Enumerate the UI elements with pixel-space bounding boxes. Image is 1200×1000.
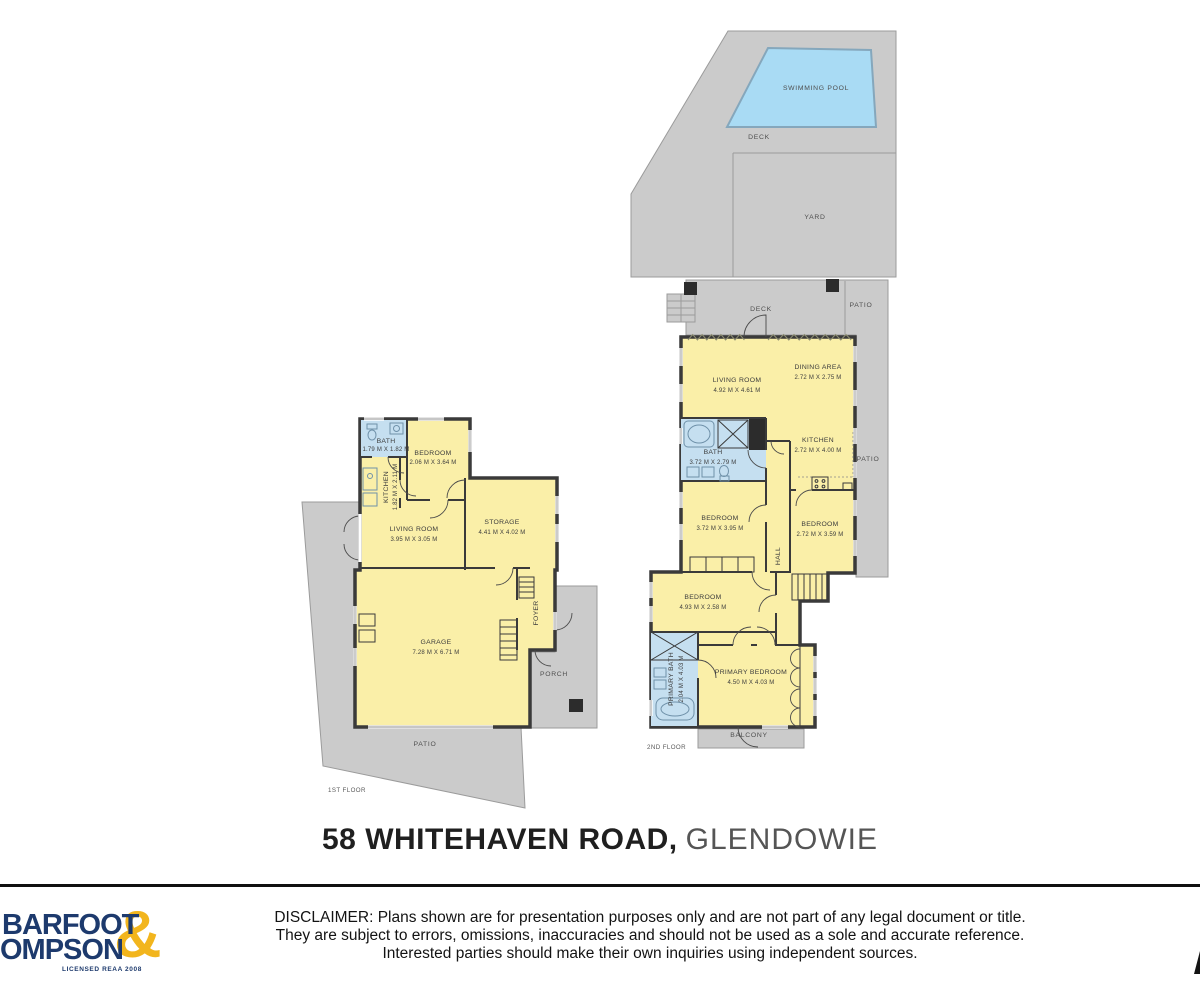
room-dims-kitchen-2f: 2.72 M X 4.00 M [794, 448, 841, 454]
second-floor-label: 2ND FLOOR [647, 744, 686, 751]
room-label-bath-1f: BATH [377, 438, 396, 445]
yard-label: YARD [804, 214, 825, 221]
porch-label: PORCH [540, 671, 568, 678]
room-label-kitchen-2f: KITCHEN [802, 437, 834, 444]
room-dims-garage: 7.28 M X 6.71 M [412, 650, 459, 656]
patio-top-label: PATIO [850, 302, 873, 309]
room-label-foyer: FOYER [533, 601, 540, 626]
swimming-pool-label: SWIMMING POOL [783, 85, 849, 92]
first-floor-plan: BATH 1.79 M X 1.82 M BEDROOM 2.06 M X 3.… [302, 419, 597, 808]
porch-post [569, 699, 583, 712]
room-label-living-room-2f: LIVING ROOM [713, 377, 762, 384]
room-dims-dining-area: 2.72 M X 2.75 M [794, 375, 841, 381]
patio-side-label: PATIO [857, 456, 880, 463]
suburb-text: GLENDOWIE [686, 823, 878, 856]
room-label-primary-bath: PRIMARY BATH [668, 652, 675, 706]
room-dims-bedroom-1: 3.72 M X 3.95 M [696, 526, 743, 532]
room-label-dining-area: DINING AREA [794, 364, 841, 371]
disclaimer-line: Interested parties should make their own… [150, 945, 1150, 963]
deck-post [826, 279, 839, 292]
floor-plan-canvas: SWIMMING POOL DECK YARD DECK PATIO PATIO… [0, 0, 1200, 820]
room-dims-kitchen-1f: 1.82 M X 2.11 M [393, 464, 399, 511]
second-floor-plan: SWIMMING POOL DECK YARD DECK PATIO PATIO… [631, 31, 896, 751]
deck-top-label: DECK [748, 134, 770, 141]
address-text: 58 WHITEHAVEN ROAD, [322, 823, 678, 856]
logo-license: LICENSED REAA 2008 [62, 966, 142, 973]
room-dims-bath-1f: 1.79 M X 1.82 M [362, 447, 409, 453]
floorplan-page: SWIMMING POOL DECK YARD DECK PATIO PATIO… [0, 0, 1200, 1000]
deck-label: DECK [750, 306, 772, 313]
disclaimer-line: DISCLAIMER: Plans shown are for presenta… [150, 909, 1150, 927]
room-dims-primary-bedroom: 4.50 M X 4.03 M [727, 680, 774, 686]
footer: & BARFOOT OMPSON LICENSED REAA 2008 DISC… [0, 884, 1200, 1000]
room-label-bedroom-3: BEDROOM [684, 594, 721, 601]
room-dims-storage: 4.41 M X 4.02 M [478, 530, 525, 536]
deck-post [684, 282, 697, 295]
balcony-label: BALCONY [730, 732, 767, 739]
room-dims-bedroom-2: 2.72 M X 3.59 M [796, 532, 843, 538]
room-label-bedroom-2: BEDROOM [801, 521, 838, 528]
disclaimer-line: They are subject to errors, omissions, i… [150, 927, 1150, 945]
corner-mark [1190, 948, 1200, 976]
logo-line2: OMPSON [0, 936, 123, 965]
room-dims-bedroom-1f: 2.06 M X 3.64 M [409, 460, 456, 466]
room-dims-living-room-2f: 4.92 M X 4.61 M [713, 388, 760, 394]
room-label-bath-2f: BATH [704, 449, 723, 456]
room-label-hall: HALL [775, 547, 782, 565]
room-label-kitchen-1f: KITCHEN [383, 471, 390, 503]
room-dims-living-room-1f: 3.95 M X 3.05 M [390, 537, 437, 543]
disclaimer-text: DISCLAIMER: Plans shown are for presenta… [150, 909, 1150, 963]
patio-label-1f: PATIO [414, 741, 437, 748]
deck-stairs [667, 294, 695, 322]
room-label-bedroom-1f: BEDROOM [414, 450, 451, 457]
room-label-storage: STORAGE [484, 519, 519, 526]
room-dims-primary-bath: 2.04 M X 4.03 M [679, 655, 685, 702]
void-shape [749, 418, 766, 450]
room-label-bedroom-1: BEDROOM [701, 515, 738, 522]
room-label-garage: GARAGE [421, 639, 452, 646]
room-label-living-room-1f: LIVING ROOM [390, 526, 439, 533]
first-floor-label: 1ST FLOOR [328, 787, 366, 794]
room-dims-bath-2f: 3.72 M X 2.79 M [689, 460, 736, 466]
room-label-primary-bedroom: PRIMARY BEDROOM [715, 669, 787, 676]
room-dims-bedroom-3: 4.93 M X 2.58 M [679, 605, 726, 611]
page-title: 58 WHITEHAVEN ROAD,GLENDOWIE [0, 823, 1200, 857]
